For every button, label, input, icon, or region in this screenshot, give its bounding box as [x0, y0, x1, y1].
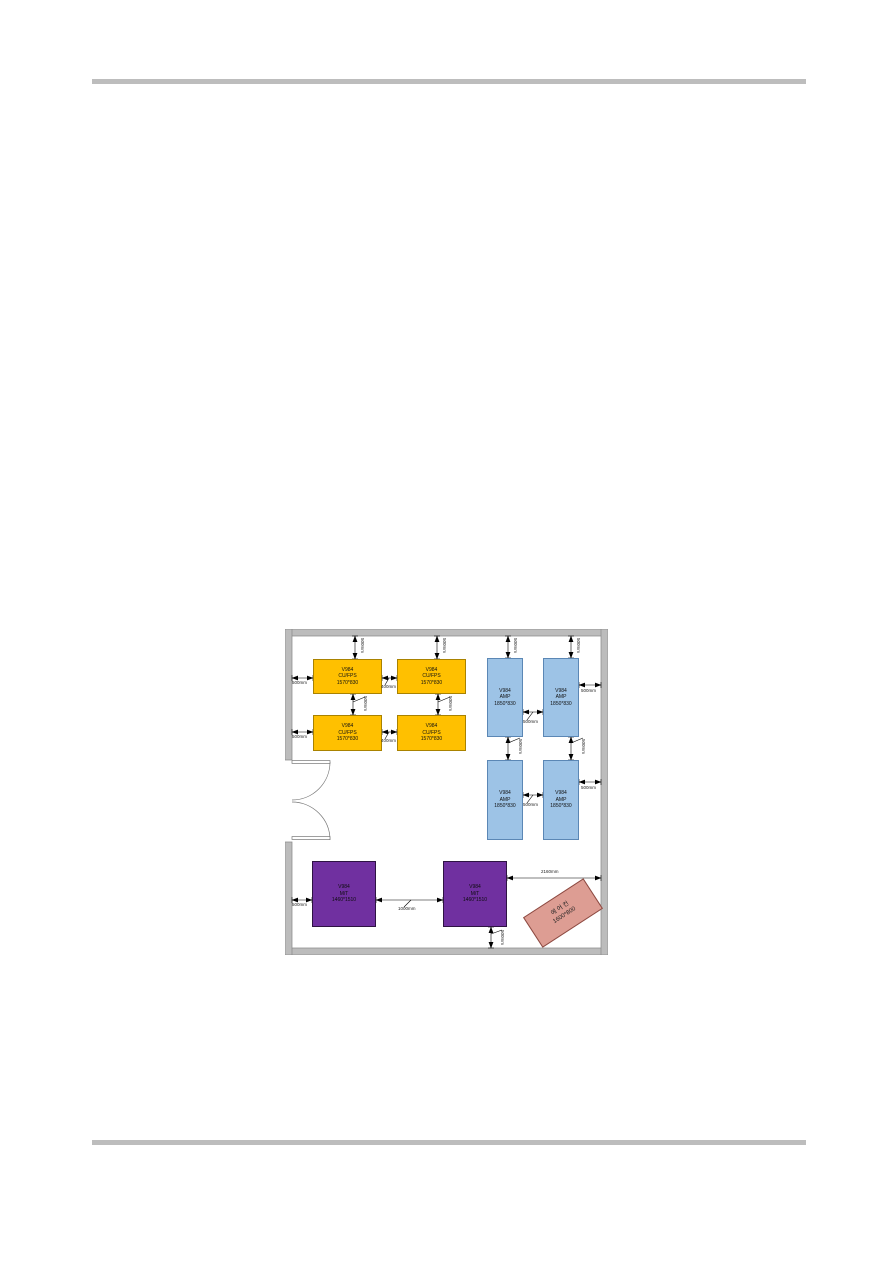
door-leaf-bottom — [292, 837, 330, 840]
dim-label: 2160mm — [541, 870, 559, 875]
block-size: 1850*830 — [550, 803, 571, 810]
equipment-block-mt-2: V984 M/T 1460*1510 — [443, 861, 507, 927]
dim-label: 500mm — [581, 786, 596, 791]
door-leaf-top — [292, 761, 330, 764]
dim-label: 500mm — [576, 638, 581, 653]
equipment-block-amp-4: V984 AMP 1850*830 — [543, 760, 579, 840]
block-size: 1850*830 — [550, 701, 571, 708]
equipment-block-mt-1: V984 M/T 1460*1510 — [312, 861, 376, 927]
dim-label: 500mm — [448, 696, 453, 711]
dim-label: 500mm — [581, 689, 596, 694]
dim-label: 500mm — [442, 638, 447, 653]
equipment-block-cu-fps-4: V984 CU/FPS 1570*830 — [397, 715, 466, 751]
block-size: 1570*830 — [337, 680, 358, 687]
dim-label: 500mm — [500, 930, 505, 945]
equipment-block-cu-fps-2: V984 CU/FPS 1570*830 — [397, 659, 466, 694]
equipment-block-amp-1: V984 AMP 1850*830 — [487, 658, 523, 737]
equipment-block-cu-fps-1: V984 CU/FPS 1570*830 — [313, 659, 382, 694]
equipment-block-amp-3: V984 AMP 1850*830 — [487, 760, 523, 840]
block-size: 1570*830 — [337, 736, 358, 743]
dim-label: 500mm — [513, 638, 518, 653]
block-size: 1570*830 — [421, 736, 442, 743]
dim-label: 400mm — [381, 685, 396, 690]
double-door — [292, 761, 330, 840]
equipment-block-cu-fps-3: V984 CU/FPS 1570*830 — [313, 715, 382, 751]
equipment-block-amp-2: V984 AMP 1850*830 — [543, 658, 579, 737]
dim-label: 1000mm — [398, 907, 416, 912]
block-size: 1460*1510 — [463, 897, 487, 904]
floor-plan: V984 CU/FPS 1570*830 V984 CU/FPS 1570*83… — [285, 629, 608, 955]
header-rule — [92, 79, 806, 84]
dim-label: 500mm — [292, 903, 307, 908]
dim-label: 500mm — [523, 720, 538, 725]
footer-rule — [92, 1140, 806, 1145]
block-size: 1850*830 — [494, 803, 515, 810]
block-size: 1460*1510 — [332, 897, 356, 904]
dim-label: 500mm — [292, 681, 307, 686]
dim-label: 400mm — [381, 739, 396, 744]
block-size: 1570*830 — [421, 680, 442, 687]
dim-label: 500mm — [518, 739, 523, 754]
block-size: 1850*830 — [494, 701, 515, 708]
dim-label: 500mm — [523, 803, 538, 808]
dim-label: 500mm — [292, 735, 307, 740]
dim-label: 500mm — [363, 696, 368, 711]
dim-label: 500mm — [360, 638, 365, 653]
dim-label: 500mm — [581, 739, 586, 754]
